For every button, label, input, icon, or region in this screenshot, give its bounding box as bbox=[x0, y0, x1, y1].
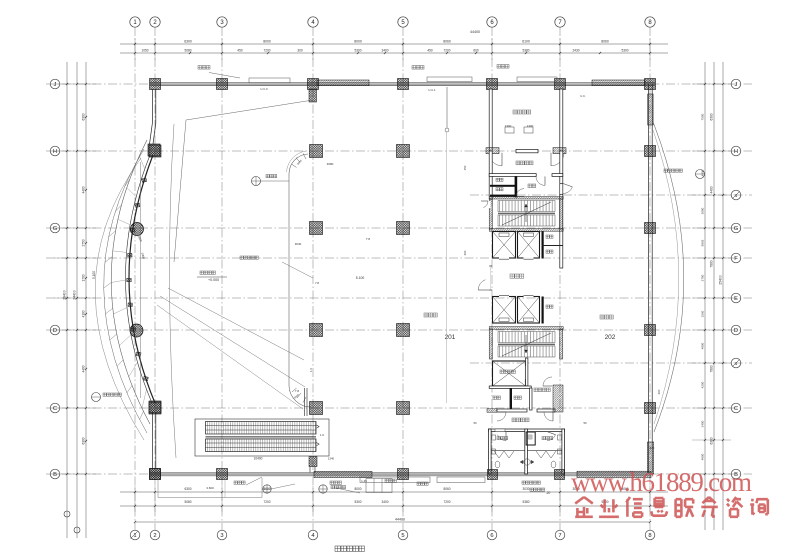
svg-text:3080: 3080 bbox=[701, 207, 705, 214]
svg-text:7200: 7200 bbox=[443, 500, 450, 504]
svg-text:300: 300 bbox=[650, 446, 655, 450]
svg-text:6300: 6300 bbox=[184, 40, 192, 44]
svg-text:8060: 8060 bbox=[601, 40, 609, 44]
svg-text:2750: 2750 bbox=[701, 274, 705, 281]
svg-text:50: 50 bbox=[473, 421, 477, 425]
svg-text:450: 450 bbox=[427, 49, 433, 53]
svg-text:6100: 6100 bbox=[522, 40, 530, 44]
svg-text:300: 300 bbox=[657, 389, 661, 394]
svg-text:5380: 5380 bbox=[522, 500, 529, 504]
svg-text:4200: 4200 bbox=[701, 381, 705, 388]
svg-text:2750: 2750 bbox=[82, 239, 86, 246]
svg-text:4800: 4800 bbox=[701, 342, 705, 349]
svg-text:7200: 7200 bbox=[443, 49, 450, 53]
svg-text:29400: 29400 bbox=[63, 290, 67, 300]
svg-text:24400: 24400 bbox=[73, 290, 77, 300]
svg-text:F: F bbox=[734, 256, 738, 262]
svg-text:U.C.0: U.C.0 bbox=[260, 87, 268, 91]
svg-text:8060: 8060 bbox=[443, 487, 450, 491]
svg-text:50: 50 bbox=[583, 421, 587, 425]
svg-text:1300: 1300 bbox=[505, 124, 512, 128]
svg-text:4400: 4400 bbox=[710, 186, 714, 193]
svg-text:7.8: 7.8 bbox=[295, 389, 300, 393]
svg-text:H: H bbox=[53, 149, 57, 155]
svg-text:8000: 8000 bbox=[354, 487, 361, 491]
svg-text:5: 5 bbox=[401, 533, 404, 539]
svg-text:7.8: 7.8 bbox=[366, 237, 371, 241]
svg-text:8000: 8000 bbox=[354, 40, 362, 44]
svg-text:6300: 6300 bbox=[82, 437, 86, 444]
svg-text:5865: 5865 bbox=[701, 239, 705, 246]
svg-text:B: B bbox=[53, 472, 57, 478]
svg-text:600: 600 bbox=[473, 49, 479, 53]
svg-text:J: J bbox=[54, 82, 57, 88]
svg-text:C: C bbox=[734, 406, 738, 412]
svg-text:6: 6 bbox=[490, 533, 493, 539]
svg-text:G: G bbox=[734, 226, 739, 232]
svg-text:5080: 5080 bbox=[184, 500, 191, 504]
svg-text:44400: 44400 bbox=[395, 518, 405, 522]
svg-text:5080: 5080 bbox=[184, 49, 191, 53]
svg-text:7500: 7500 bbox=[701, 113, 705, 120]
svg-text:1300: 1300 bbox=[527, 124, 534, 128]
svg-text:10400: 10400 bbox=[254, 457, 263, 461]
svg-text:6300: 6300 bbox=[710, 113, 714, 120]
svg-text:3040: 3040 bbox=[295, 242, 302, 246]
svg-text:3: 3 bbox=[220, 533, 223, 539]
svg-text:G: G bbox=[53, 226, 58, 232]
svg-text:5300: 5300 bbox=[621, 49, 628, 53]
svg-text:7200: 7200 bbox=[263, 500, 270, 504]
svg-text:450: 450 bbox=[237, 49, 243, 53]
svg-text:4800: 4800 bbox=[701, 453, 705, 460]
svg-text:25400: 25400 bbox=[719, 275, 723, 285]
svg-text:2430: 2430 bbox=[572, 49, 579, 53]
svg-text:7.8: 7.8 bbox=[315, 281, 319, 285]
svg-text:5300: 5300 bbox=[354, 500, 361, 504]
svg-text:4400: 4400 bbox=[82, 365, 86, 372]
svg-text:D: D bbox=[53, 328, 57, 334]
svg-text:D: D bbox=[734, 328, 738, 334]
svg-text:7200: 7200 bbox=[263, 49, 270, 53]
svg-text:6300: 6300 bbox=[184, 487, 191, 491]
svg-text:1560: 1560 bbox=[701, 310, 705, 317]
svg-text:7800: 7800 bbox=[710, 260, 714, 267]
svg-text:3400: 3400 bbox=[701, 420, 705, 427]
svg-text:U.C.: U.C. bbox=[580, 94, 586, 98]
svg-text:3400: 3400 bbox=[381, 500, 388, 504]
svg-text:1700: 1700 bbox=[82, 274, 86, 281]
svg-text:C: C bbox=[53, 406, 57, 412]
svg-text:www.h61889.com: www.h61889.com bbox=[571, 467, 752, 497]
svg-text:U.C.1: U.C.1 bbox=[428, 88, 436, 92]
svg-text:2: 2 bbox=[153, 533, 156, 539]
svg-text:4100: 4100 bbox=[82, 310, 86, 317]
svg-text:202: 202 bbox=[605, 334, 616, 341]
svg-text:5.100: 5.100 bbox=[356, 276, 365, 280]
svg-text:-20: -20 bbox=[546, 491, 551, 495]
svg-text:300: 300 bbox=[297, 49, 303, 53]
svg-text:5.100: 5.100 bbox=[92, 271, 96, 279]
svg-text:5380: 5380 bbox=[522, 49, 529, 53]
svg-text:H: H bbox=[734, 149, 738, 155]
svg-text:J: J bbox=[735, 82, 738, 88]
svg-text:8: 8 bbox=[648, 533, 651, 539]
svg-text:300: 300 bbox=[463, 250, 467, 255]
svg-text:6300: 6300 bbox=[710, 437, 714, 444]
svg-text:+0.000: +0.000 bbox=[208, 278, 219, 282]
svg-text:3400: 3400 bbox=[381, 49, 388, 53]
svg-text:8000: 8000 bbox=[263, 40, 271, 44]
svg-text:3030: 3030 bbox=[522, 487, 529, 491]
svg-text:6300: 6300 bbox=[82, 113, 86, 120]
svg-text:5300: 5300 bbox=[354, 49, 361, 53]
svg-text:7800: 7800 bbox=[710, 365, 714, 372]
svg-text:3.600: 3.600 bbox=[206, 486, 214, 490]
svg-text:1340: 1340 bbox=[328, 457, 335, 461]
svg-text:150: 150 bbox=[463, 165, 467, 170]
svg-text:3080: 3080 bbox=[327, 162, 334, 166]
svg-text:E: E bbox=[734, 296, 738, 302]
svg-text:1.6: 1.6 bbox=[309, 368, 313, 372]
svg-text:201: 201 bbox=[445, 334, 456, 341]
svg-text:4400: 4400 bbox=[82, 186, 86, 193]
svg-text:8060: 8060 bbox=[443, 40, 451, 44]
svg-text:1050: 1050 bbox=[141, 49, 148, 53]
svg-text:7: 7 bbox=[558, 533, 561, 539]
svg-text:44400: 44400 bbox=[470, 30, 480, 34]
svg-text:1.6: 1.6 bbox=[320, 433, 324, 437]
